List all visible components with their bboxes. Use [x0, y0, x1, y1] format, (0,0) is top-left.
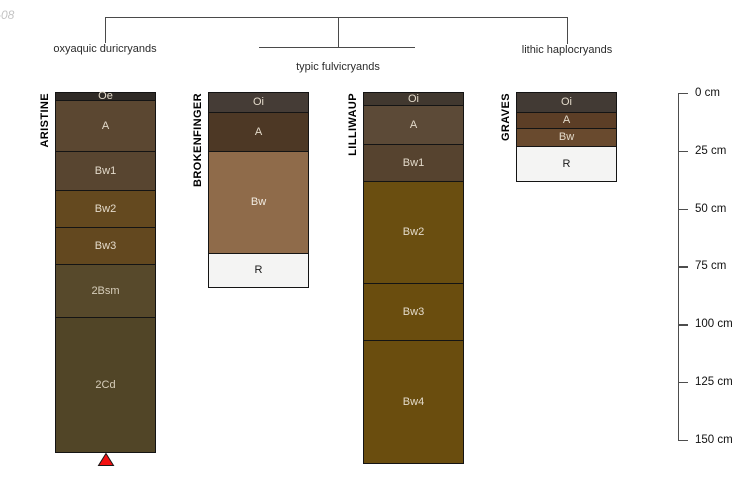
horizon-graves-r: R: [517, 146, 616, 181]
horizon-lilliwaup-bw3: Bw3: [364, 283, 463, 341]
depth-tick-label: 0 cm: [695, 86, 720, 100]
depth-tick-label: 75 cm: [695, 259, 726, 273]
soil-profile-diagram: -08 oxyaquic duricryands typic fulvicrya…: [0, 0, 750, 500]
horizon-aristine-a: A: [56, 100, 155, 151]
horizon-brokenfinger-a: A: [209, 112, 308, 151]
horizon-lilliwaup-oi: Oi: [364, 93, 463, 105]
horizon-label: A: [255, 126, 262, 138]
tree-branch-middle: [338, 17, 339, 48]
depth-tick: [678, 440, 688, 441]
timestamp-fragment: -08: [0, 8, 14, 22]
horizon-brokenfinger-bw: Bw: [209, 151, 308, 253]
horizon-brokenfinger-oi: Oi: [209, 93, 308, 112]
profile-column-aristine: OeABw1Bw2Bw32Bsm2Cd: [55, 92, 156, 453]
horizon-label: Bw1: [403, 157, 424, 169]
horizon-label: Oi: [408, 93, 419, 105]
horizon-aristine-2cd: 2Cd: [56, 317, 155, 451]
tree-middle-group-line: [259, 47, 415, 48]
horizon-graves-oi: Oi: [517, 93, 616, 112]
tree-branch-right: [567, 17, 568, 44]
profile-column-graves: OiABwR: [516, 92, 617, 182]
depth-tick: [678, 209, 688, 210]
horizon-label: Oi: [561, 96, 572, 108]
depth-tick: [678, 151, 688, 152]
depth-tick: [678, 382, 688, 383]
depth-tick: [678, 266, 688, 267]
horizon-lilliwaup-bw4: Bw4: [364, 340, 463, 463]
horizon-graves-bw: Bw: [517, 128, 616, 147]
depth-tick-label: 50 cm: [695, 202, 726, 216]
depth-tick-label: 150 cm: [695, 433, 733, 447]
horizon-label: Bw2: [403, 226, 424, 238]
horizon-label: R: [563, 158, 571, 170]
continues-below-marker: [97, 452, 115, 472]
depth-tick-label: 100 cm: [695, 317, 733, 331]
profile-column-lilliwaup: OiABw1Bw2Bw3Bw4: [363, 92, 464, 464]
horizon-label: R: [255, 264, 263, 276]
horizon-aristine-bw1: Bw1: [56, 151, 155, 190]
horizon-label: Bw1: [95, 165, 116, 177]
horizon-label: A: [102, 120, 109, 132]
profile-label-brokenfinger: BROKENFINGER: [191, 93, 205, 187]
tree-branch-left: [105, 17, 106, 43]
horizon-aristine-bw2: Bw2: [56, 190, 155, 227]
horizon-label: Oe: [98, 90, 113, 102]
horizon-label: Bw3: [95, 240, 116, 252]
group-label-lithic-haplocryands: lithic haplocryands: [522, 44, 613, 56]
horizon-label: A: [563, 114, 570, 126]
horizon-label: Bw: [251, 196, 266, 208]
depth-tick-label: 125 cm: [695, 375, 733, 389]
profile-column-brokenfinger: OiABwR: [208, 92, 309, 288]
horizon-label: Oi: [253, 96, 264, 108]
group-label-oxyaquic-duricryands: oxyaquic duricryands: [53, 43, 156, 55]
horizon-label: A: [410, 119, 417, 131]
horizon-aristine-bw3: Bw3: [56, 227, 155, 264]
horizon-lilliwaup-bw2: Bw2: [364, 181, 463, 283]
horizon-label: Bw4: [403, 396, 424, 408]
depth-tick: [678, 324, 688, 325]
profile-label-graves: GRAVES: [499, 93, 513, 141]
horizon-brokenfinger-r: R: [209, 253, 308, 288]
horizon-label: Bw: [559, 131, 574, 143]
horizon-label: 2Cd: [95, 379, 115, 391]
horizon-label: Bw2: [95, 203, 116, 215]
horizon-label: 2Bsm: [91, 285, 119, 297]
horizon-graves-a: A: [517, 112, 616, 128]
triangle-up-icon: [97, 452, 115, 467]
depth-tick: [678, 93, 688, 94]
horizon-lilliwaup-a: A: [364, 105, 463, 144]
tree-top-line: [105, 17, 568, 18]
group-label-typic-fulvicryands: typic fulvicryands: [296, 61, 380, 73]
profile-label-aristine: ARISTINE: [38, 93, 52, 148]
horizon-label: Bw3: [403, 306, 424, 318]
horizon-aristine-oe: Oe: [56, 93, 155, 100]
profile-label-lilliwaup: LILLIWAUP: [346, 93, 360, 156]
horizon-aristine-2bsm: 2Bsm: [56, 264, 155, 317]
horizon-lilliwaup-bw1: Bw1: [364, 144, 463, 181]
depth-tick-label: 25 cm: [695, 144, 726, 158]
